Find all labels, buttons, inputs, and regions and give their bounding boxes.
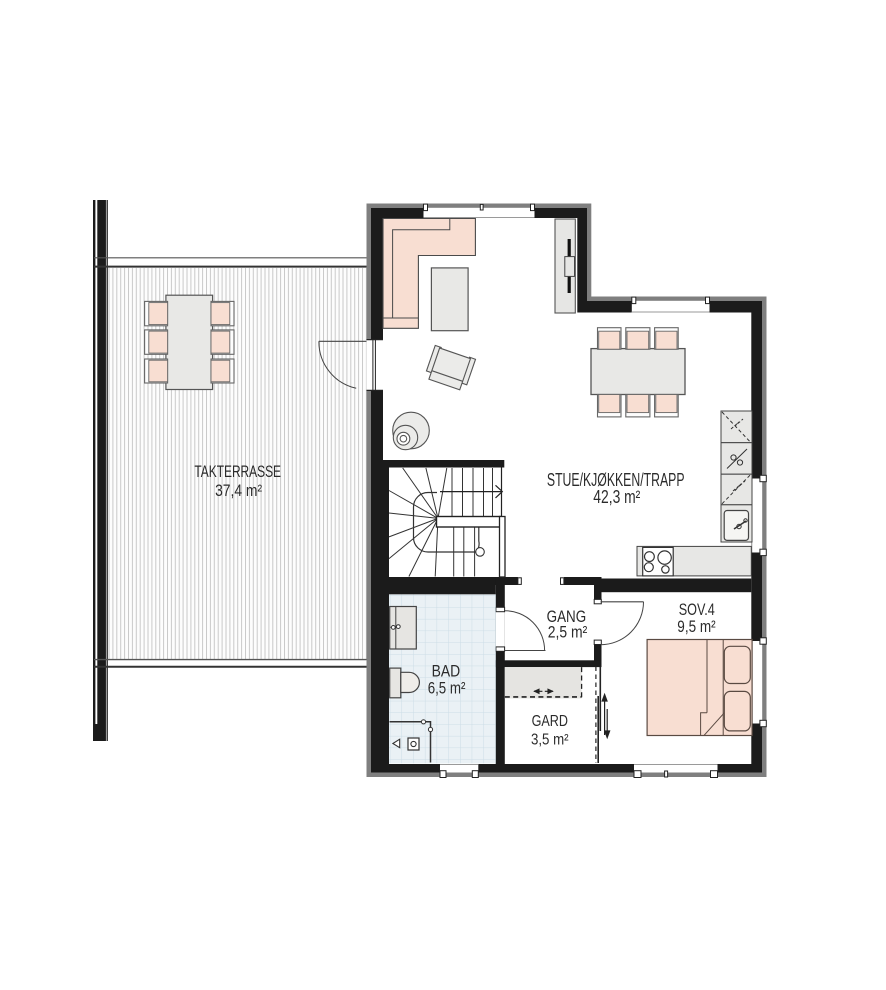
svg-text:37,4 m²: 37,4 m²: [215, 482, 263, 500]
svg-text:TAKTERRASSE: TAKTERRASSE: [194, 463, 281, 481]
svg-text:GARD: GARD: [532, 713, 568, 730]
svg-text:BAD: BAD: [432, 663, 461, 681]
svg-text:6,5 m²: 6,5 m²: [428, 680, 466, 698]
svg-text:42,3 m²: 42,3 m²: [593, 487, 640, 507]
svg-text:9,5 m²: 9,5 m²: [677, 617, 716, 636]
svg-text:3,5 m²: 3,5 m²: [531, 731, 569, 748]
svg-text:2,5 m²: 2,5 m²: [548, 623, 588, 642]
